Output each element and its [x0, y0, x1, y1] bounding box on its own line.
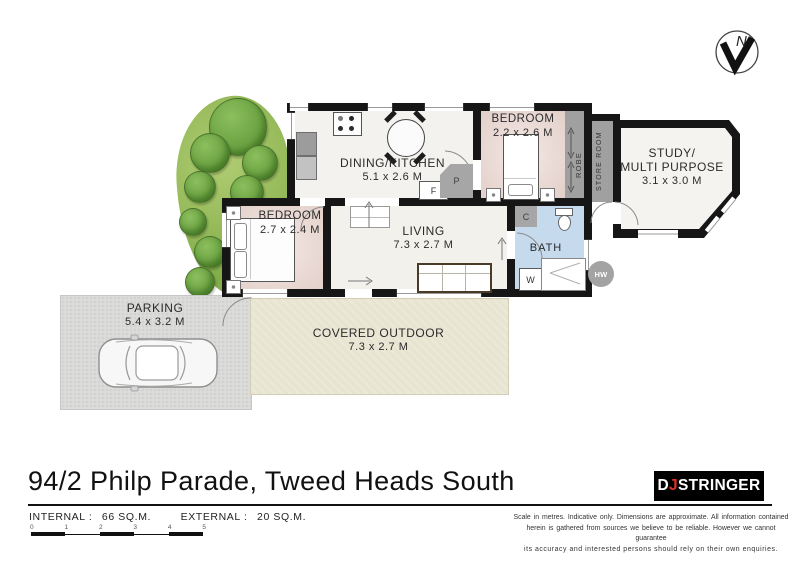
agency-logo: DJSTRINGER	[654, 471, 764, 501]
bedroom-front-dims: 2.7 x 2.4 M	[238, 223, 342, 237]
door-opening	[300, 198, 325, 206]
scale-tick: 5	[202, 524, 206, 531]
kitchen-sink	[296, 132, 317, 156]
covered-outdoor-name: COVERED OUTDOOR	[250, 326, 507, 340]
hot-water-unit: HW	[588, 261, 614, 287]
window	[287, 112, 295, 140]
page-title: 94/2 Philp Parade, Tweed Heads South	[28, 466, 515, 497]
scale-tick: 4	[168, 524, 172, 531]
stove-cooktop	[333, 112, 362, 136]
north-label: N	[736, 33, 747, 50]
covered-outdoor-label: COVERED OUTDOOR 7.3 x 2.7 M	[250, 326, 507, 354]
internal-area-value: 66 SQ.M.	[102, 511, 151, 523]
disclaimer-line: Scale in metres. Indicative only. Dimens…	[510, 513, 792, 524]
fridge-label: F	[431, 186, 437, 196]
bedroom-front-name: BEDROOM	[238, 209, 342, 223]
scale-tick-labels: 0 1 2 3 4 5	[30, 524, 206, 532]
bedroom-front-label: BEDROOM 2.7 x 2.4 M	[238, 209, 342, 237]
door-swing	[590, 201, 613, 224]
stove-burner	[338, 116, 343, 121]
entry-arrow-right	[346, 275, 374, 287]
scale-bar-segments	[31, 532, 203, 536]
dining-kitchen-dims: 5.1 x 2.6 M	[310, 170, 475, 184]
study-name-1: STUDY/	[612, 146, 732, 160]
scale-segment	[134, 534, 168, 535]
scale-segment	[169, 532, 203, 536]
disclaimer-line: herein is gathered from sources we belie…	[510, 524, 792, 545]
car-icon	[96, 334, 220, 392]
door-opening	[345, 289, 372, 297]
parking-dims: 5.4 x 3.2 M	[60, 315, 250, 329]
bath-name: BATH	[517, 241, 575, 255]
area-summary: INTERNAL : 66 SQ.M. EXTERNAL : 20 SQ.M.	[29, 511, 306, 523]
hot-water-label: HW	[594, 270, 607, 279]
cupboard-label: C	[523, 212, 530, 222]
external-area-label: EXTERNAL :	[181, 511, 248, 523]
pillow	[234, 251, 247, 278]
living-label: LIVING 7.3 x 2.7 M	[346, 224, 501, 252]
wall	[588, 114, 620, 121]
disclaimer: Scale in metres. Indicative only. Dimens…	[510, 513, 792, 556]
stove-burner	[338, 126, 343, 131]
washer-label: W	[526, 275, 535, 285]
scale-tick: 3	[133, 524, 137, 531]
dining-table	[387, 119, 425, 157]
bedside-table	[540, 188, 555, 202]
scale-segment	[31, 532, 65, 536]
store-room-label: STORE ROOM	[596, 128, 603, 194]
floor-plan-canvas: N PARKING 5.4 x 3.2 M COVERED OUTDOOR 7.…	[0, 0, 800, 565]
window	[367, 103, 393, 111]
logo-text-stringer: STRINGER	[678, 477, 761, 495]
scale-tick: 0	[30, 524, 34, 531]
dining-kitchen-label: DINING/KITCHEN 5.1 x 2.6 M	[310, 156, 475, 184]
scale-bar: 0 1 2 3 4 5	[30, 524, 206, 536]
bedroom-rear-label: BEDROOM 2.2 x 2.6 M	[479, 112, 567, 140]
covered-outdoor-dims: 7.3 x 2.7 M	[250, 340, 507, 354]
title-rule	[28, 504, 772, 506]
tree-icon	[184, 171, 216, 203]
scale-segment	[100, 532, 134, 536]
tree-icon	[185, 267, 215, 297]
dining-kitchen-name: DINING/KITCHEN	[310, 156, 475, 170]
bed-fold-line	[504, 178, 536, 179]
study-dims: 3.1 x 3.0 M	[612, 174, 732, 188]
stove-burner	[349, 116, 354, 121]
cupboard: C	[515, 206, 537, 227]
parking-name: PARKING	[60, 301, 250, 315]
door-opening	[507, 231, 515, 259]
scale-tick: 1	[64, 524, 68, 531]
bedroom-rear-dims: 2.2 x 2.6 M	[479, 126, 567, 140]
bedside-table	[486, 188, 501, 202]
washing-machine: W	[519, 268, 542, 291]
shower-door-lines	[541, 258, 584, 289]
store-room-name: STORE ROOM	[596, 131, 603, 191]
pillow	[508, 184, 533, 196]
tv-cabinet	[417, 263, 492, 293]
window	[424, 103, 464, 111]
door-swing	[614, 201, 639, 226]
stove-burner	[349, 126, 354, 131]
robe-label: ROBE	[574, 140, 583, 190]
bedroom-rear-name: BEDROOM	[479, 112, 567, 126]
study-name-2: MULTI PURPOSE	[612, 160, 732, 174]
scale-tick: 2	[99, 524, 103, 531]
logo-text-j: J	[669, 477, 678, 495]
parking-label: PARKING 5.4 x 3.2 M	[60, 301, 250, 329]
window	[242, 289, 288, 297]
logo-text-d: D	[658, 477, 670, 495]
scale-segment	[65, 534, 99, 535]
living-dims: 7.3 x 2.7 M	[346, 238, 501, 252]
living-name: LIVING	[346, 224, 501, 238]
tree-icon	[179, 208, 207, 236]
robe-name: ROBE	[574, 152, 583, 178]
window	[289, 103, 309, 111]
window	[489, 103, 535, 111]
internal-area-label: INTERNAL :	[29, 511, 92, 523]
external-area-value: 20 SQ.M.	[257, 511, 306, 523]
tree-icon	[190, 133, 230, 173]
study-label: STUDY/ MULTI PURPOSE 3.1 x 3.0 M	[612, 146, 732, 188]
disclaimer-line: its accuracy and interested persons shou…	[510, 545, 792, 556]
bath-label: BATH	[517, 241, 575, 255]
bedside-table	[226, 280, 241, 294]
